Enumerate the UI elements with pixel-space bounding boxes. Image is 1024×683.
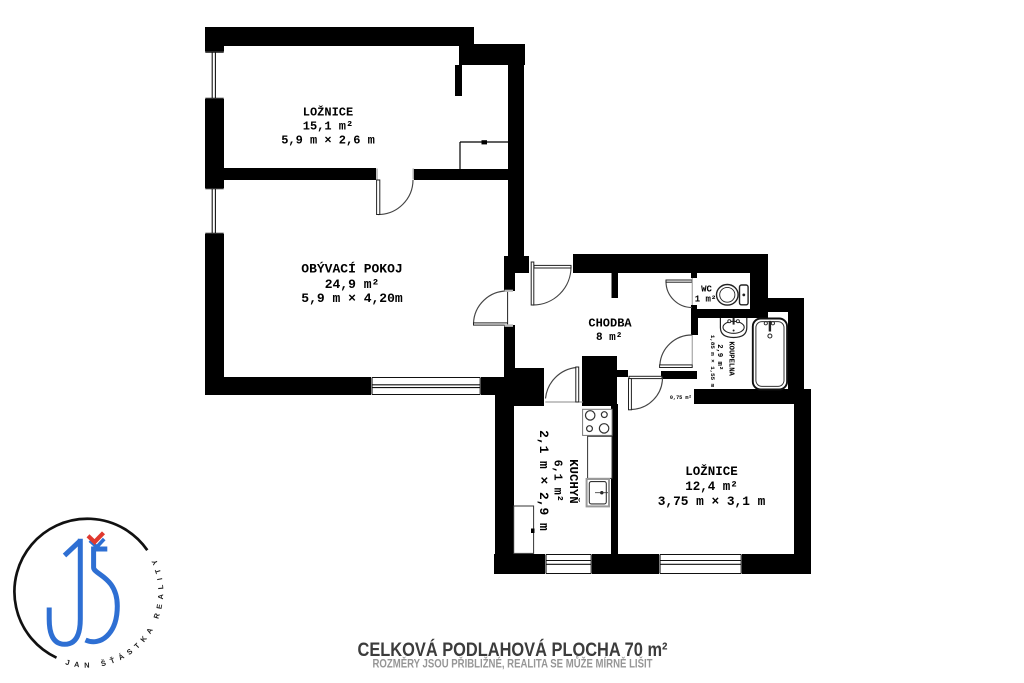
svg-text:15,1 m²: 15,1 m² [303,120,353,134]
svg-text:0,75 m²: 0,75 m² [670,395,692,401]
svg-text:24,9 m²: 24,9 m² [325,277,380,292]
svg-text:LOŽNICE: LOŽNICE [303,105,353,120]
svg-text:2,1 m × 2,9 m: 2,1 m × 2,9 m [536,430,551,531]
svg-text:1,85 m × 1,55 m: 1,85 m × 1,55 m [709,335,716,388]
svg-text:LOŽNICE: LOŽNICE [685,464,738,479]
svg-text:8 m²: 8 m² [596,332,622,344]
svg-text:3,75 m × 3,1 m: 3,75 m × 3,1 m [658,494,766,509]
svg-text:KOUPELNA: KOUPELNA [727,341,735,376]
svg-text:12,4 m²: 12,4 m² [685,480,738,494]
svg-text:ROZMĚRY JSOU PŘIBLIŽNÉ, REALIT: ROZMĚRY JSOU PŘIBLIŽNÉ, REALITA SE MŮŽE … [373,656,653,670]
svg-text:CHODBA: CHODBA [588,317,632,331]
svg-text:1 m²: 1 m² [695,294,717,304]
svg-text:5,9 m × 4,20m: 5,9 m × 4,20m [301,291,403,306]
svg-text:WC: WC [701,285,712,295]
svg-text:5,9 m × 2,6 m: 5,9 m × 2,6 m [281,134,375,148]
svg-text:OBÝVACÍ POKOJ: OBÝVACÍ POKOJ [301,262,402,277]
svg-text:KUCHYŇ: KUCHYŇ [566,459,581,504]
svg-text:6,1 m²: 6,1 m² [550,460,564,502]
